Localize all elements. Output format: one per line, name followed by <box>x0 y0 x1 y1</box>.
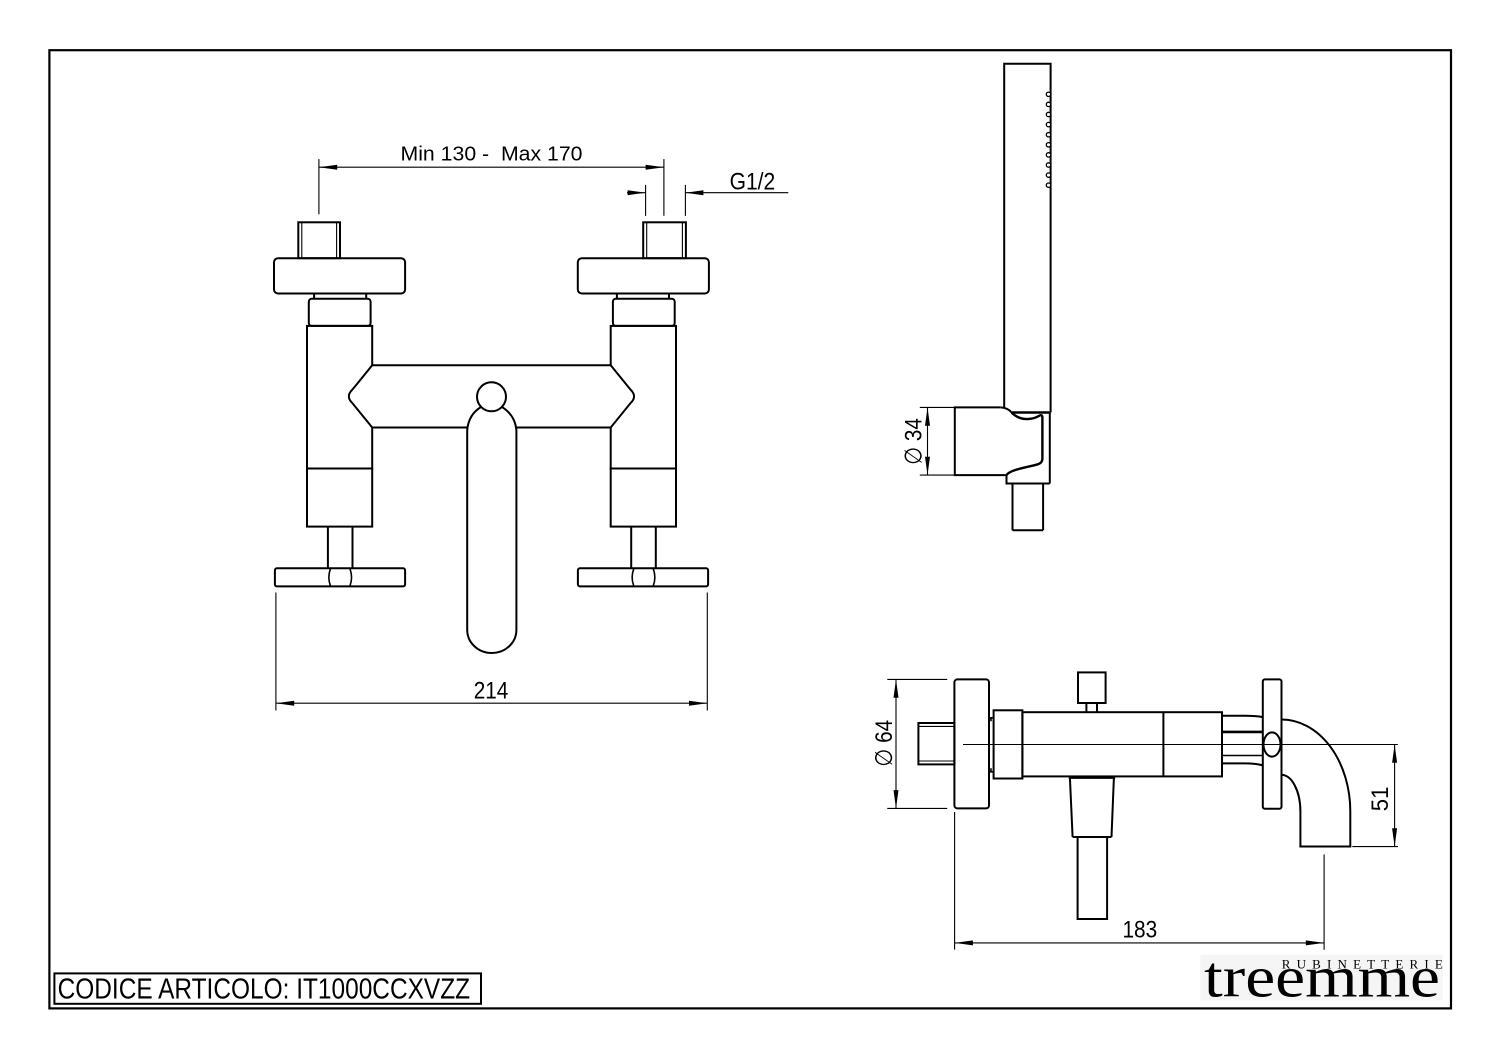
svg-text:183: 183 <box>1122 917 1157 944</box>
svg-text:51: 51 <box>1367 787 1394 812</box>
svg-text:G1/2: G1/2 <box>730 168 776 195</box>
svg-text:treemme: treemme <box>1204 945 1440 1010</box>
svg-text:Min 130 - Max 170: Min 130 - Max 170 <box>401 144 583 166</box>
svg-text:∅ 64: ∅ 64 <box>871 720 898 767</box>
svg-text:∅ 34: ∅ 34 <box>901 418 928 465</box>
svg-text:CODICE ARTICOLO: IT1000CCXVZZ: CODICE ARTICOLO: IT1000CCXVZZ <box>58 973 471 1005</box>
svg-text:214: 214 <box>474 678 509 705</box>
